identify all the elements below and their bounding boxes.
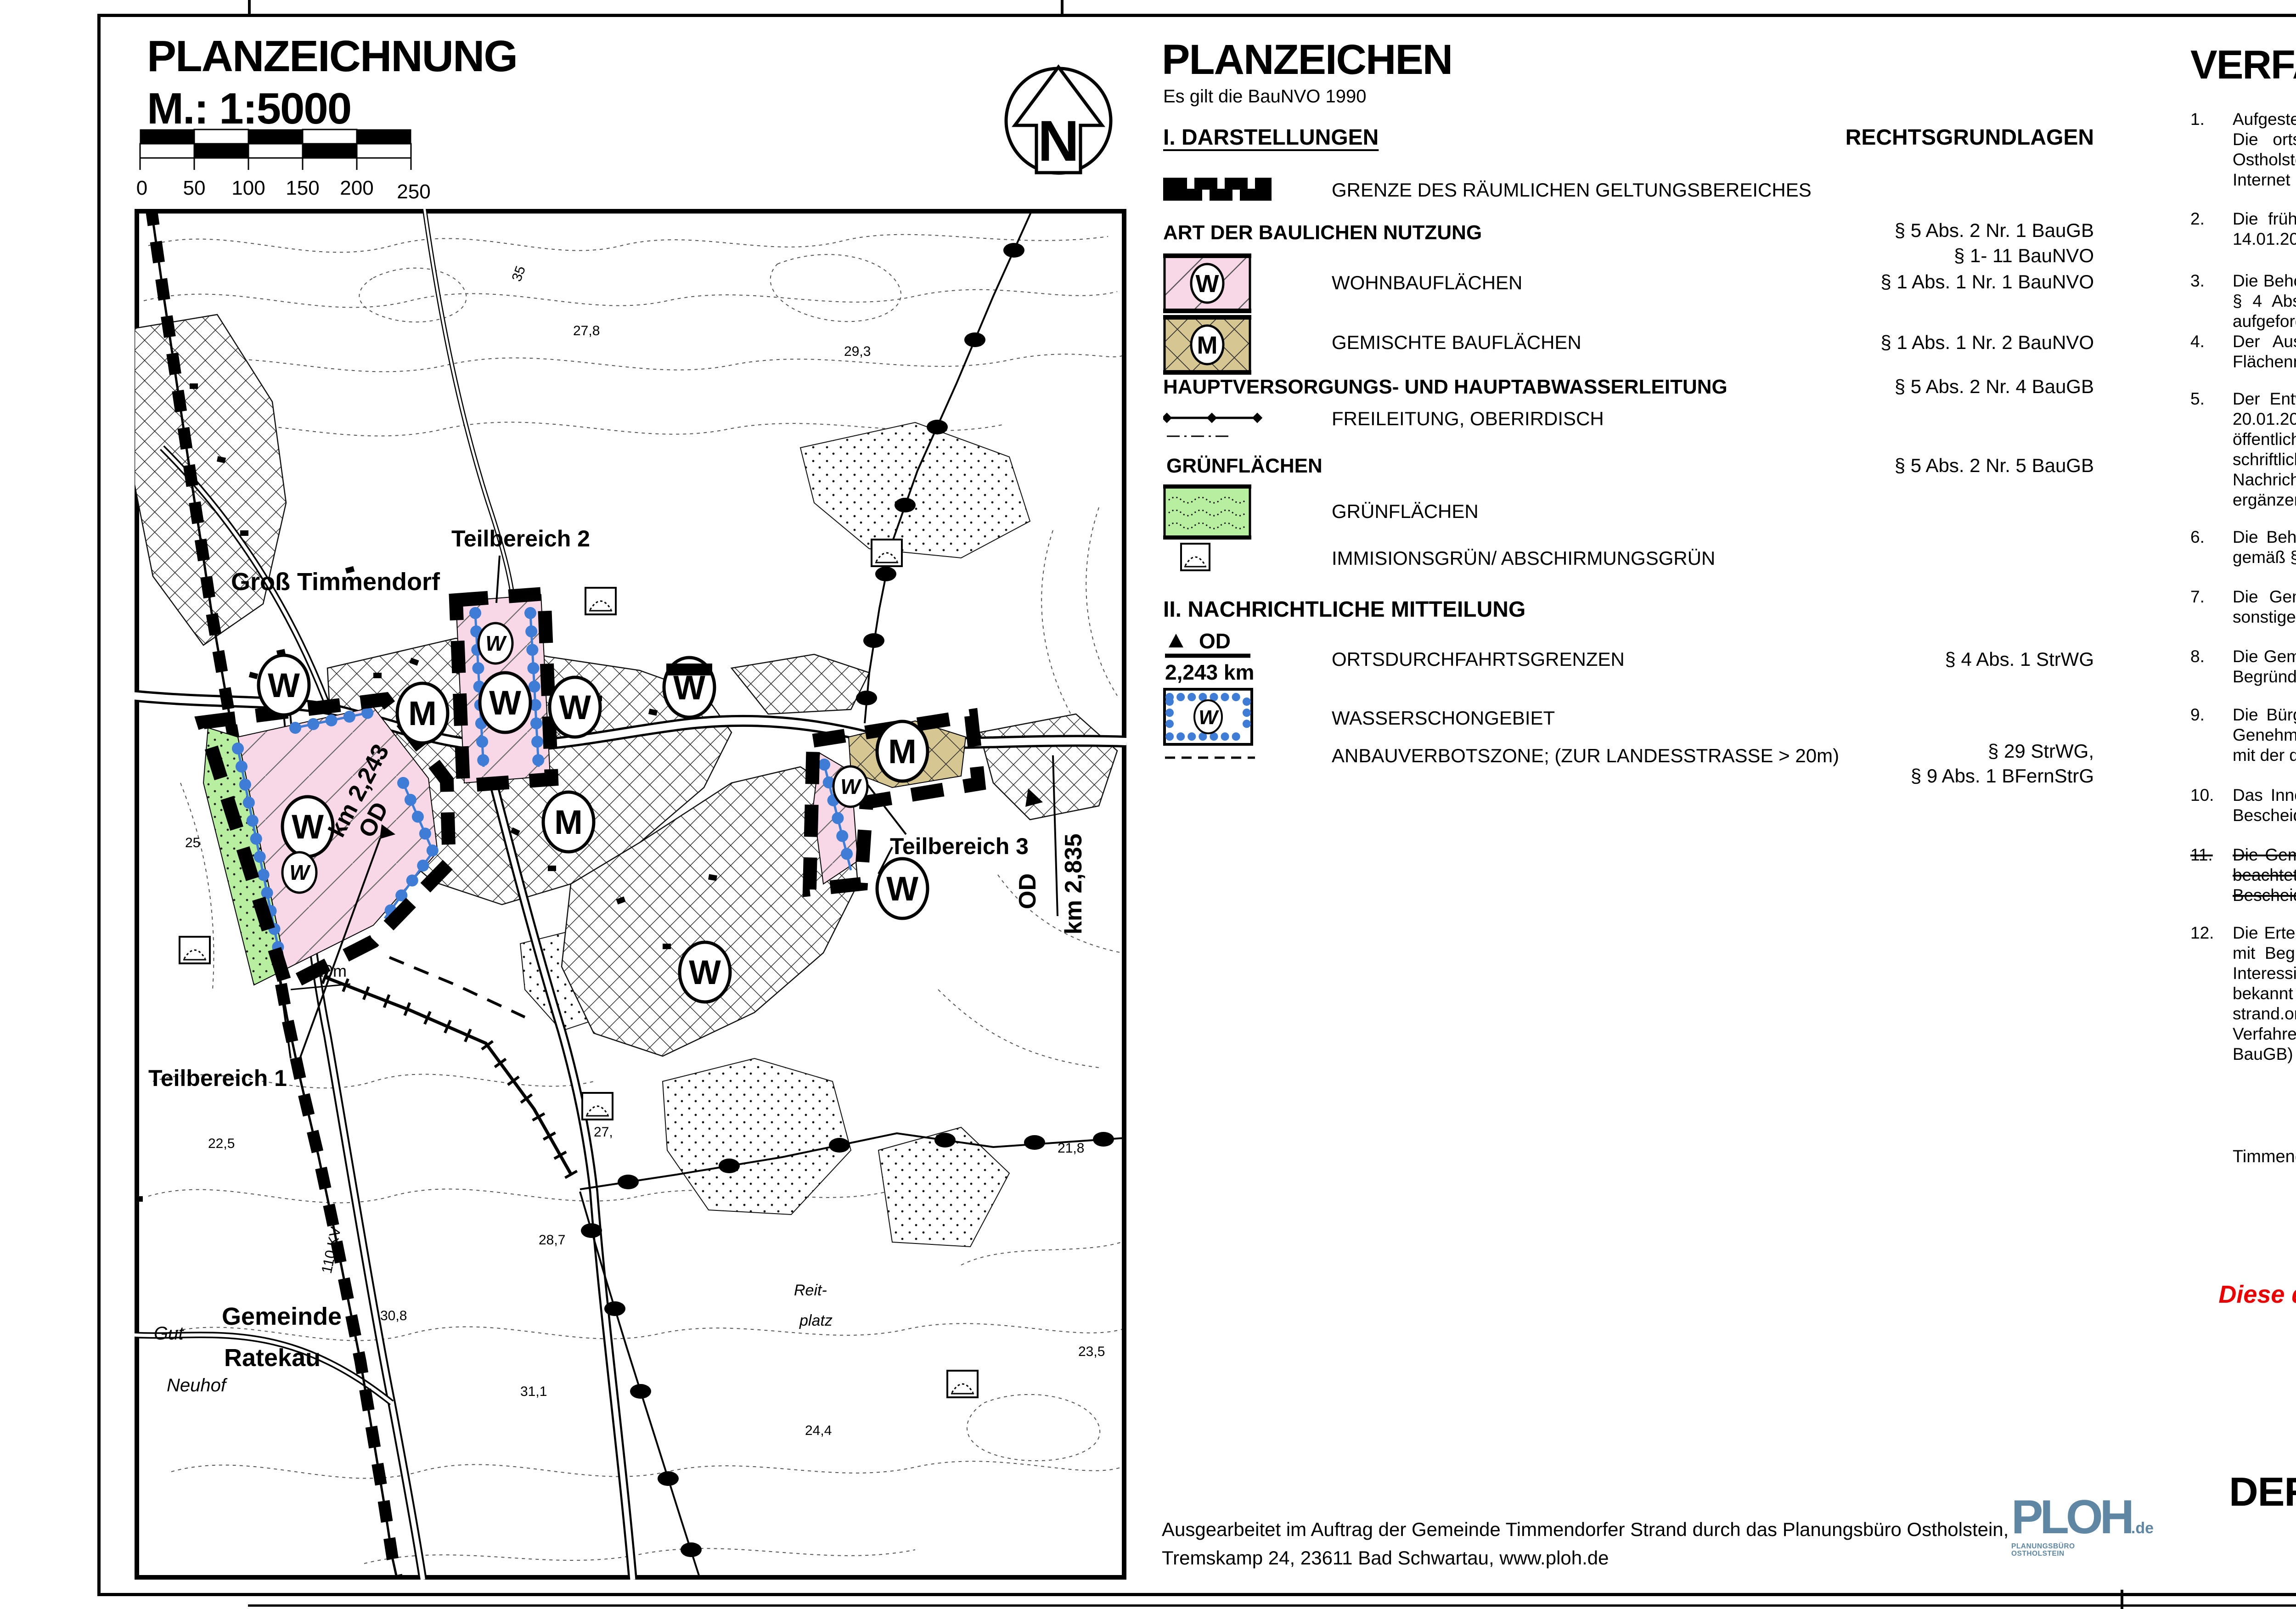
legend-head-haupt: HAUPTVERSORGUNGS- UND HAUPTABWASSERLEITU… (1163, 376, 1728, 399)
verf-item-9: 9.Die Bürgermeisterin hat die Übereinsti… (2190, 705, 2296, 765)
map-label-ratekau: Ratekau (224, 1344, 321, 1372)
svg-text:30,8: 30,8 (380, 1308, 407, 1323)
legend-ref: § 5 Abs. 2 Nr. 5 BauGB (1773, 455, 2094, 477)
legend-ref: § 5 Abs. 2 Nr. 1 BauGB (1773, 219, 2094, 242)
north-arrow-icon: N (992, 54, 1125, 187)
verf-item-2: 2.Die frühzeitige Beteiligung der Öffent… (2190, 209, 2296, 249)
map-label-gross-timmendorf: Groß Timmendorf (231, 568, 440, 596)
verf-item-3: 3.Die Behörden und sonstigen Träger öffe… (2190, 271, 2296, 332)
svg-text:31,1: 31,1 (520, 1384, 547, 1399)
titleblock-subtitle: für 3 Teilbereiche in Groß Timmendorf (2181, 1518, 2296, 1541)
svg-text:W: W (886, 870, 918, 908)
svg-text:200: 200 (340, 177, 373, 199)
verf-item-1: 1.Aufgestellt aufgrund des Aufstellungsb… (2190, 109, 2296, 190)
verf-item-5: 5.Der Entwurf der 59. Änderung des Fläch… (2190, 389, 2296, 510)
map-label-teilbereich-1: Teilbereich 1 (148, 1065, 287, 1091)
svg-text:W: W (489, 684, 521, 722)
gruenflaechen-symbol (1163, 484, 1251, 540)
svg-text:platz: platz (799, 1312, 833, 1329)
svg-text:W: W (840, 775, 862, 799)
legend-ref: § 5 Abs. 2 Nr. 4 BauGB (1773, 376, 2094, 398)
svg-text:N: N (1038, 109, 1079, 173)
legend-ref: § 1 Abs. 1 Nr. 2 BauNVO (1773, 332, 2094, 354)
svg-text:25: 25 (185, 835, 200, 850)
verfahrensvermerke-title: VERFAHRENSVERMERKE (2190, 41, 2296, 88)
titleblock-line-2: FLÄCHENNUTZUNGSPLANES (2181, 1413, 2296, 1460)
freileitung-symbol (1163, 408, 1264, 444)
verf-item-8: 8.Die Gemeindevertretung hat die 59. Änd… (2190, 647, 2296, 687)
immissionsgruen-symbol (1180, 543, 1210, 572)
plan-drawing-title: PLANZEICHNUNG (147, 31, 517, 82)
titleblock-line-3: DER GEMEINDE TIMMENDORFER STRAND (2181, 1468, 2296, 1515)
svg-text:27,: 27, (594, 1125, 613, 1140)
svg-text:W: W (1196, 270, 1219, 298)
legend-head-art: ART DER BAULICHEN NUTZUNG (1163, 221, 1482, 244)
svg-text:28,7: 28,7 (539, 1232, 565, 1248)
legend-label-immis: IMMISIONSGRÜN/ ABSCHIRMUNGSGRÜN (1332, 547, 1715, 569)
sheet-bottom-line (248, 1604, 2296, 1607)
svg-text:150: 150 (286, 177, 319, 199)
svg-text:20m: 20m (315, 962, 347, 980)
verf-item-11: 11.Die Gemeindevertretung hat die Nebenb… (2190, 845, 2296, 906)
map-label-teilbereich-2: Teilbereich 2 (451, 526, 590, 551)
svg-text:W: W (292, 808, 324, 846)
svg-text:2,243 km: 2,243 km (1165, 660, 1254, 684)
legend-title: PLANZEICHEN (1162, 36, 1452, 84)
svg-text:W: W (673, 669, 705, 707)
map-label-gut: Gut (154, 1323, 184, 1344)
legend-ref: § 1- 11 BauNVO (1773, 245, 2094, 267)
svg-text:23,5: 23,5 (1078, 1344, 1105, 1359)
geltungsbereich-symbol (1163, 177, 1273, 203)
svg-text:21,8: 21,8 (1058, 1141, 1084, 1156)
svg-text:250: 250 (397, 180, 430, 203)
digital-copy-note: Diese digitale Fassung entspricht der re… (2190, 1280, 2296, 1309)
legend-label-gruen: GRÜNFLÄCHEN (1332, 501, 1479, 523)
verf-item-6: 6.Die Behörden und sonstigen Träger öffe… (2190, 527, 2296, 568)
svg-text:W: W (268, 666, 300, 704)
titleblock-line-1: 59. ÄNDERUNG DES (2181, 1360, 2296, 1407)
map-label-gemeinde: Gemeinde (222, 1303, 342, 1330)
svg-text:50: 50 (183, 177, 206, 199)
legend-label-orts: ORTSDURCHFAHRTSGRENZEN (1332, 648, 1625, 670)
ploh-logo: PLOH.de PLANUNGSBÜRO OSTHOLSTEIN (2011, 1493, 2122, 1557)
svg-text:Reit-: Reit- (794, 1282, 827, 1299)
svg-text:W: W (485, 631, 507, 655)
svg-text:W: W (289, 861, 311, 884)
legend-head-gruen: GRÜNFLÄCHEN (1166, 455, 1322, 478)
svg-text:M: M (554, 803, 583, 841)
verf-item-10: 10.Das Innenministerium des Landes Schle… (2190, 785, 2296, 826)
svg-text:0: 0 (136, 177, 147, 199)
legend-label-anbau: ANBAUVERBOTSZONE; (ZUR LANDESSTRASSE > 2… (1332, 745, 1839, 767)
legend-label-grenze: GRENZE DES RÄUMLICHEN GELTUNGSBEREICHES (1332, 179, 1812, 201)
legend-label-frei: FREILEITUNG, OBERIRDISCH (1332, 408, 1604, 430)
legend-ref: § 4 Abs. 1 StrWG (1773, 648, 2094, 670)
svg-text:W: W (689, 953, 721, 991)
signature-place-date: Timmendorfer Strand, den 20.02.2015 (2233, 1147, 2296, 1167)
legend-ref: § 29 StrWG, (1773, 740, 2094, 762)
legend-ref: § 1 Abs. 1 Nr. 1 BauNVO (1773, 271, 2094, 293)
legend-label-wsg: WASSERSCHONGEBIET (1332, 707, 1555, 729)
svg-text:W: W (559, 688, 591, 726)
svg-text:M: M (888, 732, 917, 771)
fold-mark (248, 0, 251, 14)
svg-text:24,4: 24,4 (805, 1423, 832, 1438)
svg-text:OD: OD (1014, 873, 1041, 909)
svg-text:M: M (1197, 332, 1218, 359)
svg-text:OD: OD (1199, 629, 1231, 653)
legend-section-nachrichtlich: II. NACHRICHTLICHE MITTEILUNG (1163, 597, 1525, 622)
svg-text:100: 100 (231, 177, 265, 199)
svg-text:27,8: 27,8 (573, 323, 600, 338)
ploh-logo-text: PLOH (2011, 1491, 2131, 1544)
credit-line-2: Tremskamp 24, 23611 Bad Schwartau, www.p… (1162, 1547, 1609, 1569)
svg-text:22,5: 22,5 (208, 1136, 235, 1151)
scale-bar: 0 50 100 150 200 250 (135, 125, 439, 208)
wasserschongebiet-symbol: W (1163, 688, 1253, 746)
legend-section-darstellungen: I. DARSTELLUNGEN (1163, 125, 1379, 150)
plan-map: W W W W W W W M M M W W W Groß Timmendor… (135, 209, 1126, 1580)
legend-ref: § 9 Abs. 1 BFernStrG (1773, 765, 2094, 787)
ortsdurchfahrt-symbol: OD 2,243 km (1163, 628, 1255, 690)
legend-section-rechtsgrundlagen: RECHTSGRUNDLAGEN (1791, 125, 2094, 150)
gemischte-bauflaechen-symbol: M (1163, 315, 1251, 375)
svg-text:29,3: 29,3 (844, 344, 871, 359)
map-label-teilbereich-3: Teilbereich 3 (890, 833, 1029, 859)
svg-text:W: W (1199, 706, 1219, 729)
legend-label-gemischt: GEMISCHTE BAUFLÄCHEN (1332, 332, 1581, 354)
wohnbauflaechen-symbol: W (1163, 253, 1251, 313)
ploh-logo-subtitle: PLANUNGSBÜRO OSTHOLSTEIN (2011, 1543, 2122, 1557)
credit-text: Ausgearbeitet im Auftrag der Gemeinde Ti… (1162, 1515, 2011, 1572)
svg-text:M: M (408, 694, 437, 732)
map-label-neuhof: Neuhof (167, 1375, 228, 1395)
svg-text:km 2,835: km 2,835 (1060, 833, 1087, 934)
credit-line-1: Ausgearbeitet im Auftrag der Gemeinde Ti… (1162, 1519, 2009, 1540)
legend-note: Es gilt die BauNVO 1990 (1163, 86, 1366, 107)
verf-item-12: 12.Die Erteilung der Genehmigung der 59.… (2190, 923, 2296, 1064)
verf-item-7: 7.Die Gemeindevertretung hat die abgegeb… (2190, 587, 2296, 627)
legend-label-wohn: WOHNBAUFLÄCHEN (1332, 272, 1522, 294)
fold-mark (1061, 0, 1064, 14)
verf-item-4: 4.Der Ausschuss für Planung und Bauwesen… (2190, 332, 2296, 372)
scale-tick-labels: 0 50 100 150 200 250 (136, 177, 431, 203)
anbauverbotszone-symbol (1163, 751, 1260, 765)
